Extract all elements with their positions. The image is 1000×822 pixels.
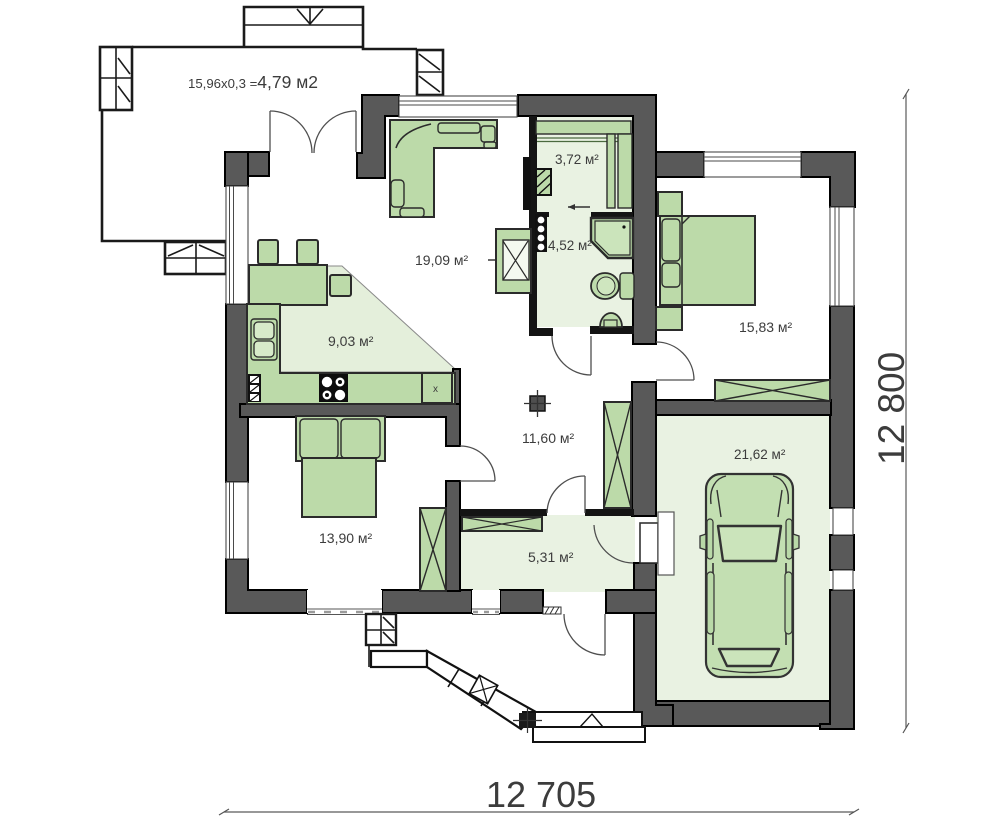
svg-text:15,83 м²: 15,83 м² — [739, 319, 793, 335]
svg-text:19,09 м²: 19,09 м² — [415, 252, 469, 268]
svg-text:x: x — [433, 384, 438, 395]
svg-text:4,52 м²: 4,52 м² — [548, 238, 592, 253]
svg-text:3,72 м²: 3,72 м² — [555, 152, 599, 167]
svg-text:21,62 м²: 21,62 м² — [734, 447, 786, 462]
svg-text:13,90 м²: 13,90 м² — [319, 530, 373, 546]
svg-text:5,31 м²: 5,31 м² — [528, 549, 574, 565]
svg-text:9,03 м²: 9,03 м² — [328, 333, 374, 349]
svg-text:12 705: 12 705 — [486, 774, 596, 815]
svg-text:12 800: 12 800 — [871, 352, 912, 465]
svg-text:11,60 м²: 11,60 м² — [522, 430, 575, 446]
